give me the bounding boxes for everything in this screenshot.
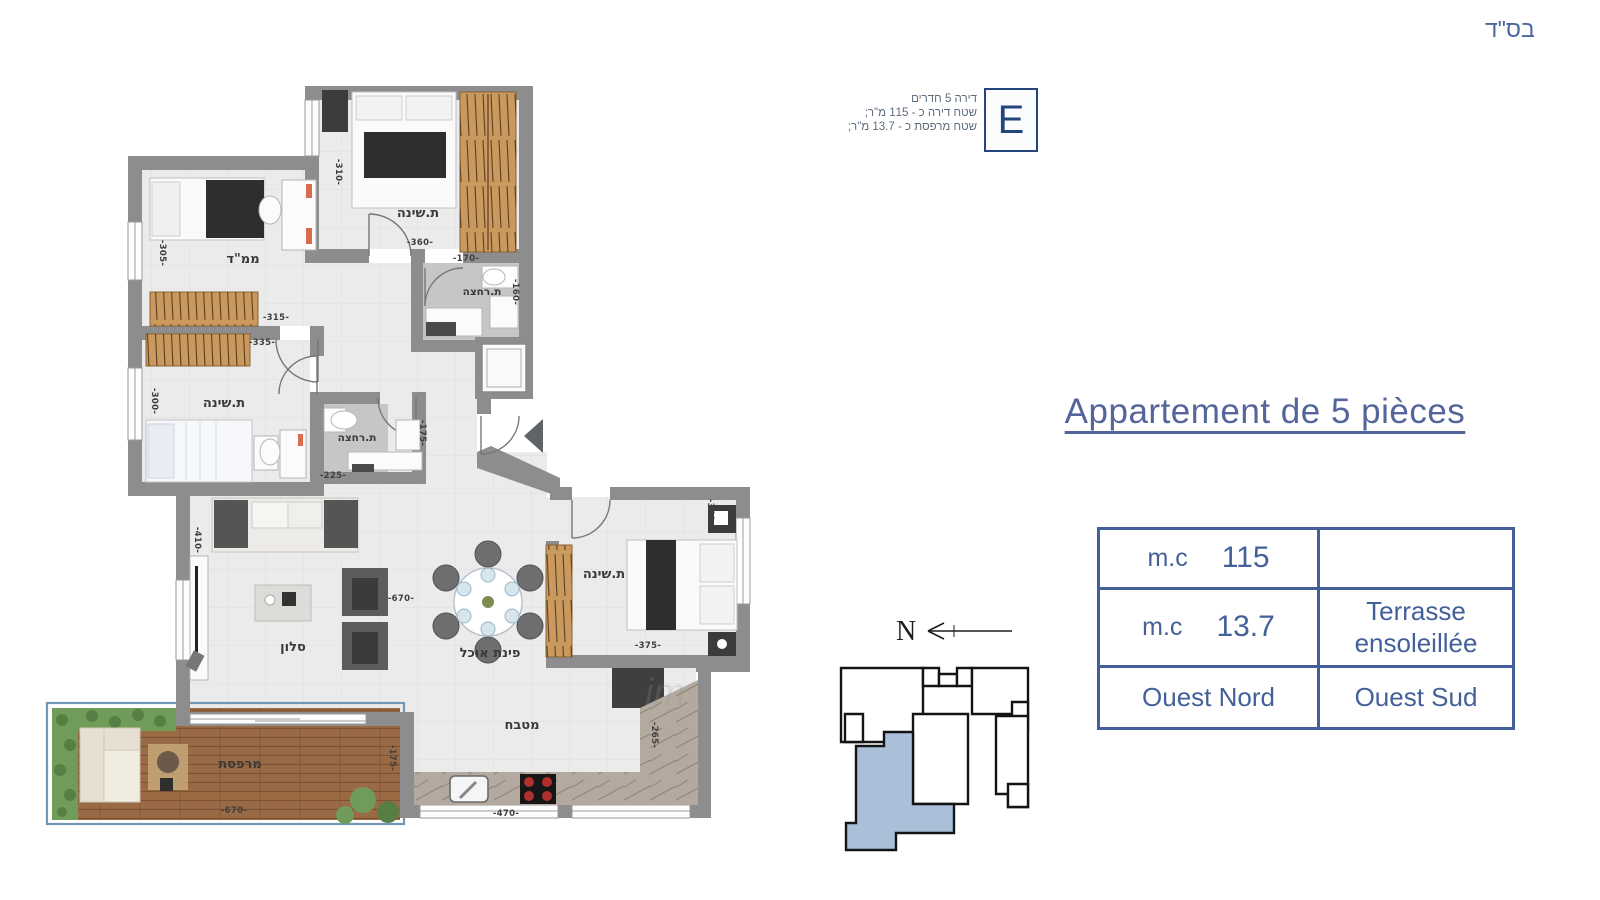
wardrobe (460, 92, 516, 252)
room-label: ת.שינה (583, 567, 625, 582)
dim-label: -670- (388, 594, 414, 604)
stove (520, 774, 556, 804)
dim-label: -340- (705, 499, 715, 525)
room-label: מרפסת (218, 757, 262, 772)
room-label: ממ"ד (226, 252, 259, 267)
sofa (212, 498, 358, 552)
bsd-text: בס"ד (1485, 16, 1535, 43)
shaft (482, 344, 526, 392)
outdoor-table (157, 751, 179, 773)
wardrobe (146, 334, 250, 366)
unit-letter-badge: E (984, 88, 1038, 152)
room-label: פינת אוכל (460, 646, 521, 661)
shrub (336, 806, 354, 824)
area-value: 115 (1222, 540, 1270, 577)
floor-plan: im ת.שינהממ"דת.רחצהת.שינהת.רחצהסלוןפינת … (0, 0, 800, 870)
nightstand-lamp (714, 511, 728, 525)
dim-label: -175- (387, 745, 397, 771)
armchair (342, 568, 388, 616)
orientation-west-north: Ouest Nord (1142, 682, 1275, 714)
watermark: im (645, 672, 685, 714)
sink (450, 776, 488, 802)
unit-label: m.c (1147, 543, 1187, 574)
room-label: ת.שינה (397, 206, 439, 221)
armchair (342, 622, 388, 670)
spec-cell-orientation-2: Ouest Sud (1320, 668, 1512, 727)
page-title: Appartement de 5 pièces (1005, 392, 1525, 432)
spec-cell-orientation-1: Ouest Nord (1100, 668, 1320, 727)
dim-label: -160- (510, 279, 520, 305)
compass-north-label: N (896, 616, 916, 647)
unit-info-line: שטח דירה כ - 115 מ"ר; (715, 107, 977, 121)
wardrobe (150, 292, 258, 326)
bed (352, 92, 456, 208)
room-label: סלון (280, 640, 306, 655)
dim-label: -410- (192, 527, 202, 553)
room-label: מטבח (504, 718, 539, 733)
compass-arrow-icon (928, 623, 1012, 639)
room-label: ת.רחצה (463, 286, 502, 298)
wardrobe (546, 545, 572, 657)
dim-label: -300- (149, 388, 159, 414)
spec-table: m.c 115 m.c 13.7 Terrasse ensoleillée Ou… (1097, 527, 1515, 730)
unit-info-line: דירה 5 חדרים (715, 93, 977, 107)
bed (150, 178, 264, 240)
dim-label: -335- (249, 338, 275, 348)
dim-label: -305- (157, 240, 167, 266)
orientation-west-south: Ouest Sud (1355, 682, 1478, 714)
dresser (322, 90, 348, 132)
room-label: ת.שינה (203, 396, 245, 411)
room-label: ת.רחצה (338, 432, 377, 444)
dim-label: -470- (493, 809, 519, 819)
spec-cell-terrace-label: Terrasse ensoleillée (1320, 590, 1512, 668)
unit-info-block: דירה 5 חדרים שטח דירה כ - 115 מ"ר; שטח מ… (715, 93, 977, 134)
outdoor-stool (160, 778, 173, 791)
unit-info-line: שטח מרפסת כ - 13.7 מ"ר; (715, 121, 977, 135)
unit-label: m.c (1142, 612, 1182, 643)
terrace-area-value: 13.7 (1216, 609, 1274, 646)
spec-cell-area: m.c 115 (1100, 530, 1320, 590)
spec-cell-terrace-area: m.c 13.7 (1100, 590, 1320, 668)
dim-label: -310- (333, 159, 343, 185)
spec-cell-empty (1320, 530, 1512, 590)
bed (627, 540, 737, 630)
dim-label: -670- (221, 806, 247, 816)
page-title-text: Appartement de 5 pièces (1065, 392, 1466, 431)
outdoor-sofa (80, 728, 140, 802)
key-plan (826, 652, 1031, 857)
dim-label: -315- (263, 313, 289, 323)
coffee-table (255, 585, 311, 621)
shrub (377, 801, 399, 823)
dim-label: -375- (635, 641, 661, 651)
dim-label: -170- (453, 254, 479, 264)
dim-label: -265- (649, 722, 659, 748)
terrace-label: Terrasse ensoleillée (1334, 596, 1498, 659)
bed (146, 420, 252, 482)
nightstand-lamp (717, 639, 727, 649)
shrub (350, 787, 376, 813)
dim-label: -175- (417, 420, 427, 446)
entrance-arrow-icon (524, 419, 543, 453)
compass: N (888, 608, 1023, 650)
unit-letter: E (998, 98, 1025, 143)
dim-label: -225- (320, 471, 346, 481)
dim-label: -360- (407, 238, 433, 248)
